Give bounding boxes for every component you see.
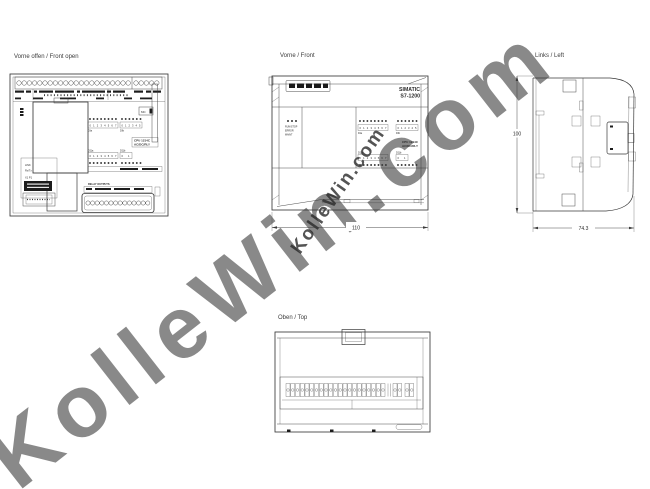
mac-address-label (24, 181, 52, 191)
di-b-label: DIb (120, 129, 125, 133)
vent-slots (572, 101, 600, 172)
di-a-label: DIa (358, 131, 363, 135)
link-led-label: LINK (25, 163, 31, 167)
ethernet-port: LINK Rx/Tx X1 P1 (21, 158, 57, 206)
diagram-page: KolleWin.com KolleWin.com Vorne offen / … (0, 0, 650, 489)
mounting-clip-bottom (562, 194, 575, 206)
memory-card-slot: MC (139, 107, 153, 115)
di-a-label: DIa (88, 129, 93, 133)
dimension-drawing: KolleWin.com KolleWin.com Vorne offen / … (0, 0, 650, 489)
bottom-latch-detail (396, 425, 422, 430)
relay-terminal-holes (86, 201, 150, 205)
dimension-width-value: 110 (352, 226, 360, 232)
di-b-digits: 0 1 2 3 4 5 (398, 126, 418, 130)
dq-b-digits: 0 1 (398, 156, 407, 160)
order-number-band (88, 167, 162, 172)
di-a-digits: 0 1 2 3 4 5 6 7 (90, 124, 118, 128)
rating-label (286, 81, 330, 92)
svg-text:AC/DC/RLY: AC/DC/RLY (402, 144, 418, 148)
dq-a-digits: 0 1 2 3 4 5 6 7 (360, 156, 388, 160)
top-terminal-block (280, 377, 423, 409)
view-top: Oben / Top (275, 315, 430, 432)
top-housing (275, 332, 430, 432)
memory-card-label: MC (141, 110, 146, 114)
terminal-contacts (286, 384, 414, 397)
watermark-large: KolleWin.com (0, 5, 573, 489)
run-stop-label: RUN/STOP (285, 126, 298, 129)
brand-s7-1200: S7-1200 (400, 94, 420, 100)
dq-b-label: DQb (396, 151, 402, 155)
dq-led-block: DQa 0 1 2 3 4 5 6 7 DQb 0 1 (88, 149, 141, 164)
di-b-digits: 0 1 2 3 4 5 (122, 124, 142, 128)
dq-a-label: DQa (88, 149, 94, 153)
view-front-title: Vorne / Front (280, 53, 315, 59)
di-b-label: DIb (396, 131, 401, 135)
dq-b-digits: 0 1 (122, 154, 131, 158)
rxtx-led-label: Rx/Tx (25, 169, 32, 173)
view-top-title: Oben / Top (278, 315, 308, 321)
error-label: ERROR (285, 130, 294, 133)
open-compartment (33, 102, 88, 173)
svg-text:AC/DC/RLY: AC/DC/RLY (134, 143, 150, 147)
dq-b-label: DQb (120, 149, 126, 153)
cpu-designation: CPU 1214C AC/DC/RLY (132, 138, 158, 148)
x1p1-port-label: X1 P1 (25, 176, 33, 180)
relay-outputs-label: RELAY OUTPUTS (88, 182, 110, 186)
terminal-screw-holes (17, 81, 159, 86)
maint-label: MAINT (285, 134, 293, 137)
brand-simatic: SIMATIC (399, 87, 420, 93)
dq-a-digits: 0 1 2 3 4 5 6 7 (90, 154, 118, 158)
svg-text:KolleWin.com: KolleWin.com (0, 5, 573, 489)
cpu-designation-front: CPU 1214C AC/DC/RLY (402, 140, 419, 148)
dimension-depth-value: 74.3 (579, 226, 589, 232)
dimension-height-value: 100 (513, 132, 522, 138)
view-front-open-title: Vorne offen / Front open (14, 54, 79, 60)
expansion-bus-connector (607, 122, 634, 154)
top-terminal-strip (15, 77, 162, 89)
di-a-digits: 0 1 2 3 4 5 6 7 (360, 126, 388, 130)
lower-door-tab (47, 173, 77, 211)
dimension-depth: 74.3 (533, 196, 634, 232)
relay-output-block: RELAY OUTPUTS (82, 182, 160, 213)
status-led-marks (20, 108, 24, 116)
terminal-label-row (15, 91, 161, 100)
di-led-block: 0 1 2 3 4 5 6 7 DIa 0 1 2 3 4 5 DIb (88, 119, 142, 133)
view-left-title: Links / Left (535, 53, 564, 59)
status-led-block: RUN/STOP ERROR MAINT (285, 121, 298, 137)
view-front-open: Vorne offen / Front open (10, 54, 168, 216)
dq-a-label: DQa (358, 151, 364, 155)
